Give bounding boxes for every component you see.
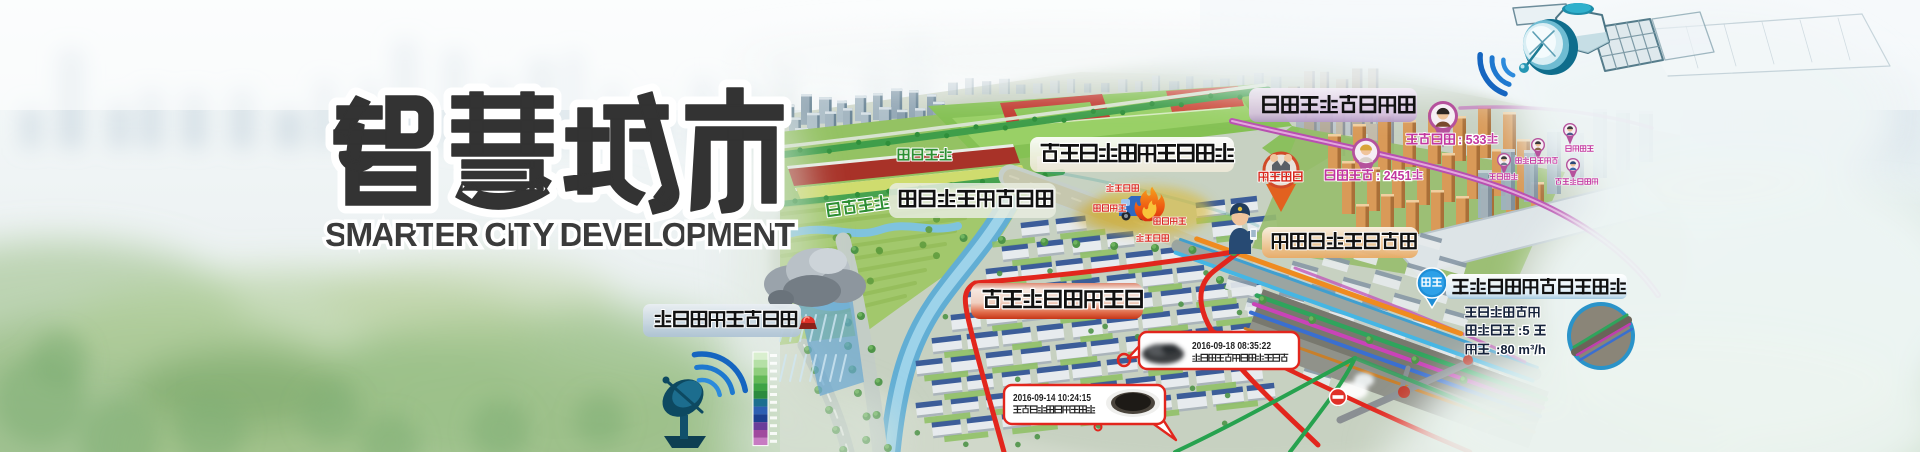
svg-text:: 533: : 533 xyxy=(1458,133,1487,147)
svg-text:2016-09-14 10:24:15: 2016-09-14 10:24:15 xyxy=(1013,392,1091,404)
svg-text:2016-09-18 08:35:22: 2016-09-18 08:35:22 xyxy=(1192,340,1271,352)
svg-text:: 2451: : 2451 xyxy=(1376,169,1411,183)
svg-text::5: :5 xyxy=(1518,323,1530,338)
svg-text::80 m³/h: :80 m³/h xyxy=(1496,342,1546,357)
svg-text:SMARTER CITY DEVELOPMENT: SMARTER CITY DEVELOPMENT xyxy=(325,217,796,254)
